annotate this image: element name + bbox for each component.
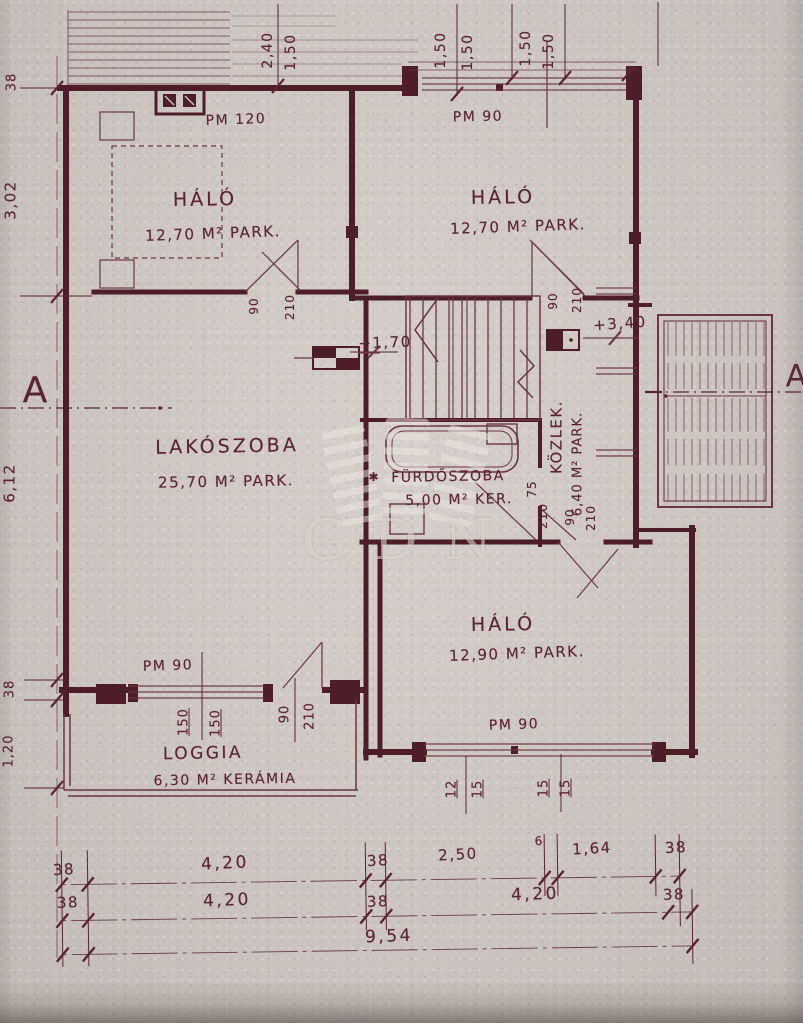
dim-bottom: 38 [57, 895, 80, 911]
door-size: 210 [537, 503, 549, 529]
room-label-halo-br: HÁLÓ [471, 615, 535, 635]
room-note-furdoszoba: ✱ [368, 471, 379, 483]
dim-top: 1,50 [542, 32, 556, 69]
dim-bottom: 38 [663, 887, 686, 903]
dim-top: 1,50 [434, 31, 448, 68]
door-size: 210 [585, 505, 597, 531]
level-mark-stair: +1,70 [358, 335, 412, 352]
staircase [406, 296, 540, 420]
window-mark: 150 [178, 708, 191, 736]
room-label-loggia: LOGGIA [163, 745, 244, 763]
dim-bottom: 38 [53, 862, 76, 878]
door-size: 90 [547, 292, 559, 309]
room-area-kozlekedo: 6,40 M² PARK. [572, 412, 585, 516]
window-mark: 150 [210, 709, 223, 737]
door-size: 90 [248, 297, 260, 314]
room-label-halo-tr: HÁLÓ [471, 188, 535, 208]
window-mark: 12 [446, 780, 459, 799]
level-mark-upper: +3,40 [593, 315, 647, 334]
section-mark-left: A [23, 373, 50, 409]
window-mark: 15 [472, 780, 485, 799]
room-area-loggia: 6,30 M² KERÁMIA [153, 772, 296, 788]
dim-top: 1,50 [284, 33, 298, 70]
dim-top: 2,40 [261, 31, 275, 68]
dim-bottom: 4,20 [201, 854, 250, 873]
photo-edge-right [781, 0, 803, 1023]
plan-linework [0, 0, 803, 1023]
room-label-halo-tl: HÁLÓ [173, 190, 237, 210]
dim-bottom: 38 [367, 853, 390, 869]
room-area-furdoszoba: 5,00 M² KER. [405, 492, 513, 508]
door-size: 210 [284, 294, 296, 320]
roof-hatch [68, 10, 418, 86]
dimension-lines [20, 2, 699, 973]
room-label-kozlekedo: KÖZLEK. [550, 400, 565, 474]
room-label-lakoszoba: LAKÓSZOBA [155, 436, 299, 458]
door-size: 90 [279, 705, 292, 724]
door-size: 90 [564, 508, 576, 525]
dim-bottom: 2,50 [438, 846, 478, 863]
window-mark: 15 [560, 779, 573, 798]
walls [60, 70, 695, 758]
room-area-lakoszoba: 25,70 M² PARK. [158, 473, 294, 490]
room-label-furdoszoba: FÜRDŐSZOBA [391, 469, 505, 485]
dim-bottom: 4,20 [203, 892, 251, 911]
dim-top: 1,50 [519, 29, 533, 66]
dim-top: 1,50 [461, 33, 475, 70]
terrace-hatch [658, 315, 772, 507]
door-size: 210 [571, 287, 583, 313]
dim-bottom: 38 [367, 894, 390, 910]
door-size: 210 [304, 702, 317, 730]
photo-edge-left [0, 0, 14, 1023]
dim-total-width: 9,54 [365, 928, 413, 947]
photo-edge-bottom [0, 981, 803, 1023]
window-mark: 15 [538, 779, 551, 798]
dim-bottom: 4,20 [511, 886, 559, 905]
window-label-halo-br: PM 90 [489, 717, 540, 733]
dim-bottom: 1,64 [572, 840, 612, 857]
dim-bottom: 38 [665, 840, 688, 856]
floor-plan-scan: GDN HÁLÓ 12,70 M² PARK. HÁLÓ 12,70 M² PA… [0, 0, 803, 1023]
dim-bottom: 6 [534, 835, 543, 847]
window-label-loggia: PM 90 [143, 658, 194, 674]
door-size: 75 [526, 480, 538, 497]
window-label-halo-tl: PM 120 [205, 112, 266, 128]
entry-door-label: PM 90 [453, 110, 504, 125]
section-line [0, 392, 803, 410]
